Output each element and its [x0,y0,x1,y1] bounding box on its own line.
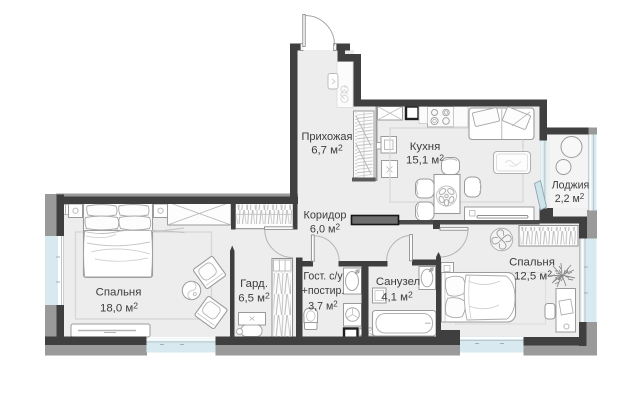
svg-text:Санузел: Санузел [376,276,420,288]
svg-text:Спальня: Спальня [509,257,555,269]
svg-text:12,5 м2: 12,5 м2 [514,269,552,283]
svg-text:18,0 м2: 18,0 м2 [100,301,138,315]
svg-text:Гард.: Гард. [240,278,268,290]
svg-text:+постир.: +постир. [302,285,345,297]
svg-text:Лоджия: Лоджия [552,180,590,192]
svg-text:Коридор: Коридор [303,210,346,222]
svg-text:15,1 м2: 15,1 м2 [406,153,444,167]
svg-text:Прихожая: Прихожая [302,131,353,143]
svg-text:Кухня: Кухня [410,141,441,153]
svg-text:Спальня: Спальня [96,287,142,299]
svg-text:Гост. с/у: Гост. с/у [303,271,343,283]
